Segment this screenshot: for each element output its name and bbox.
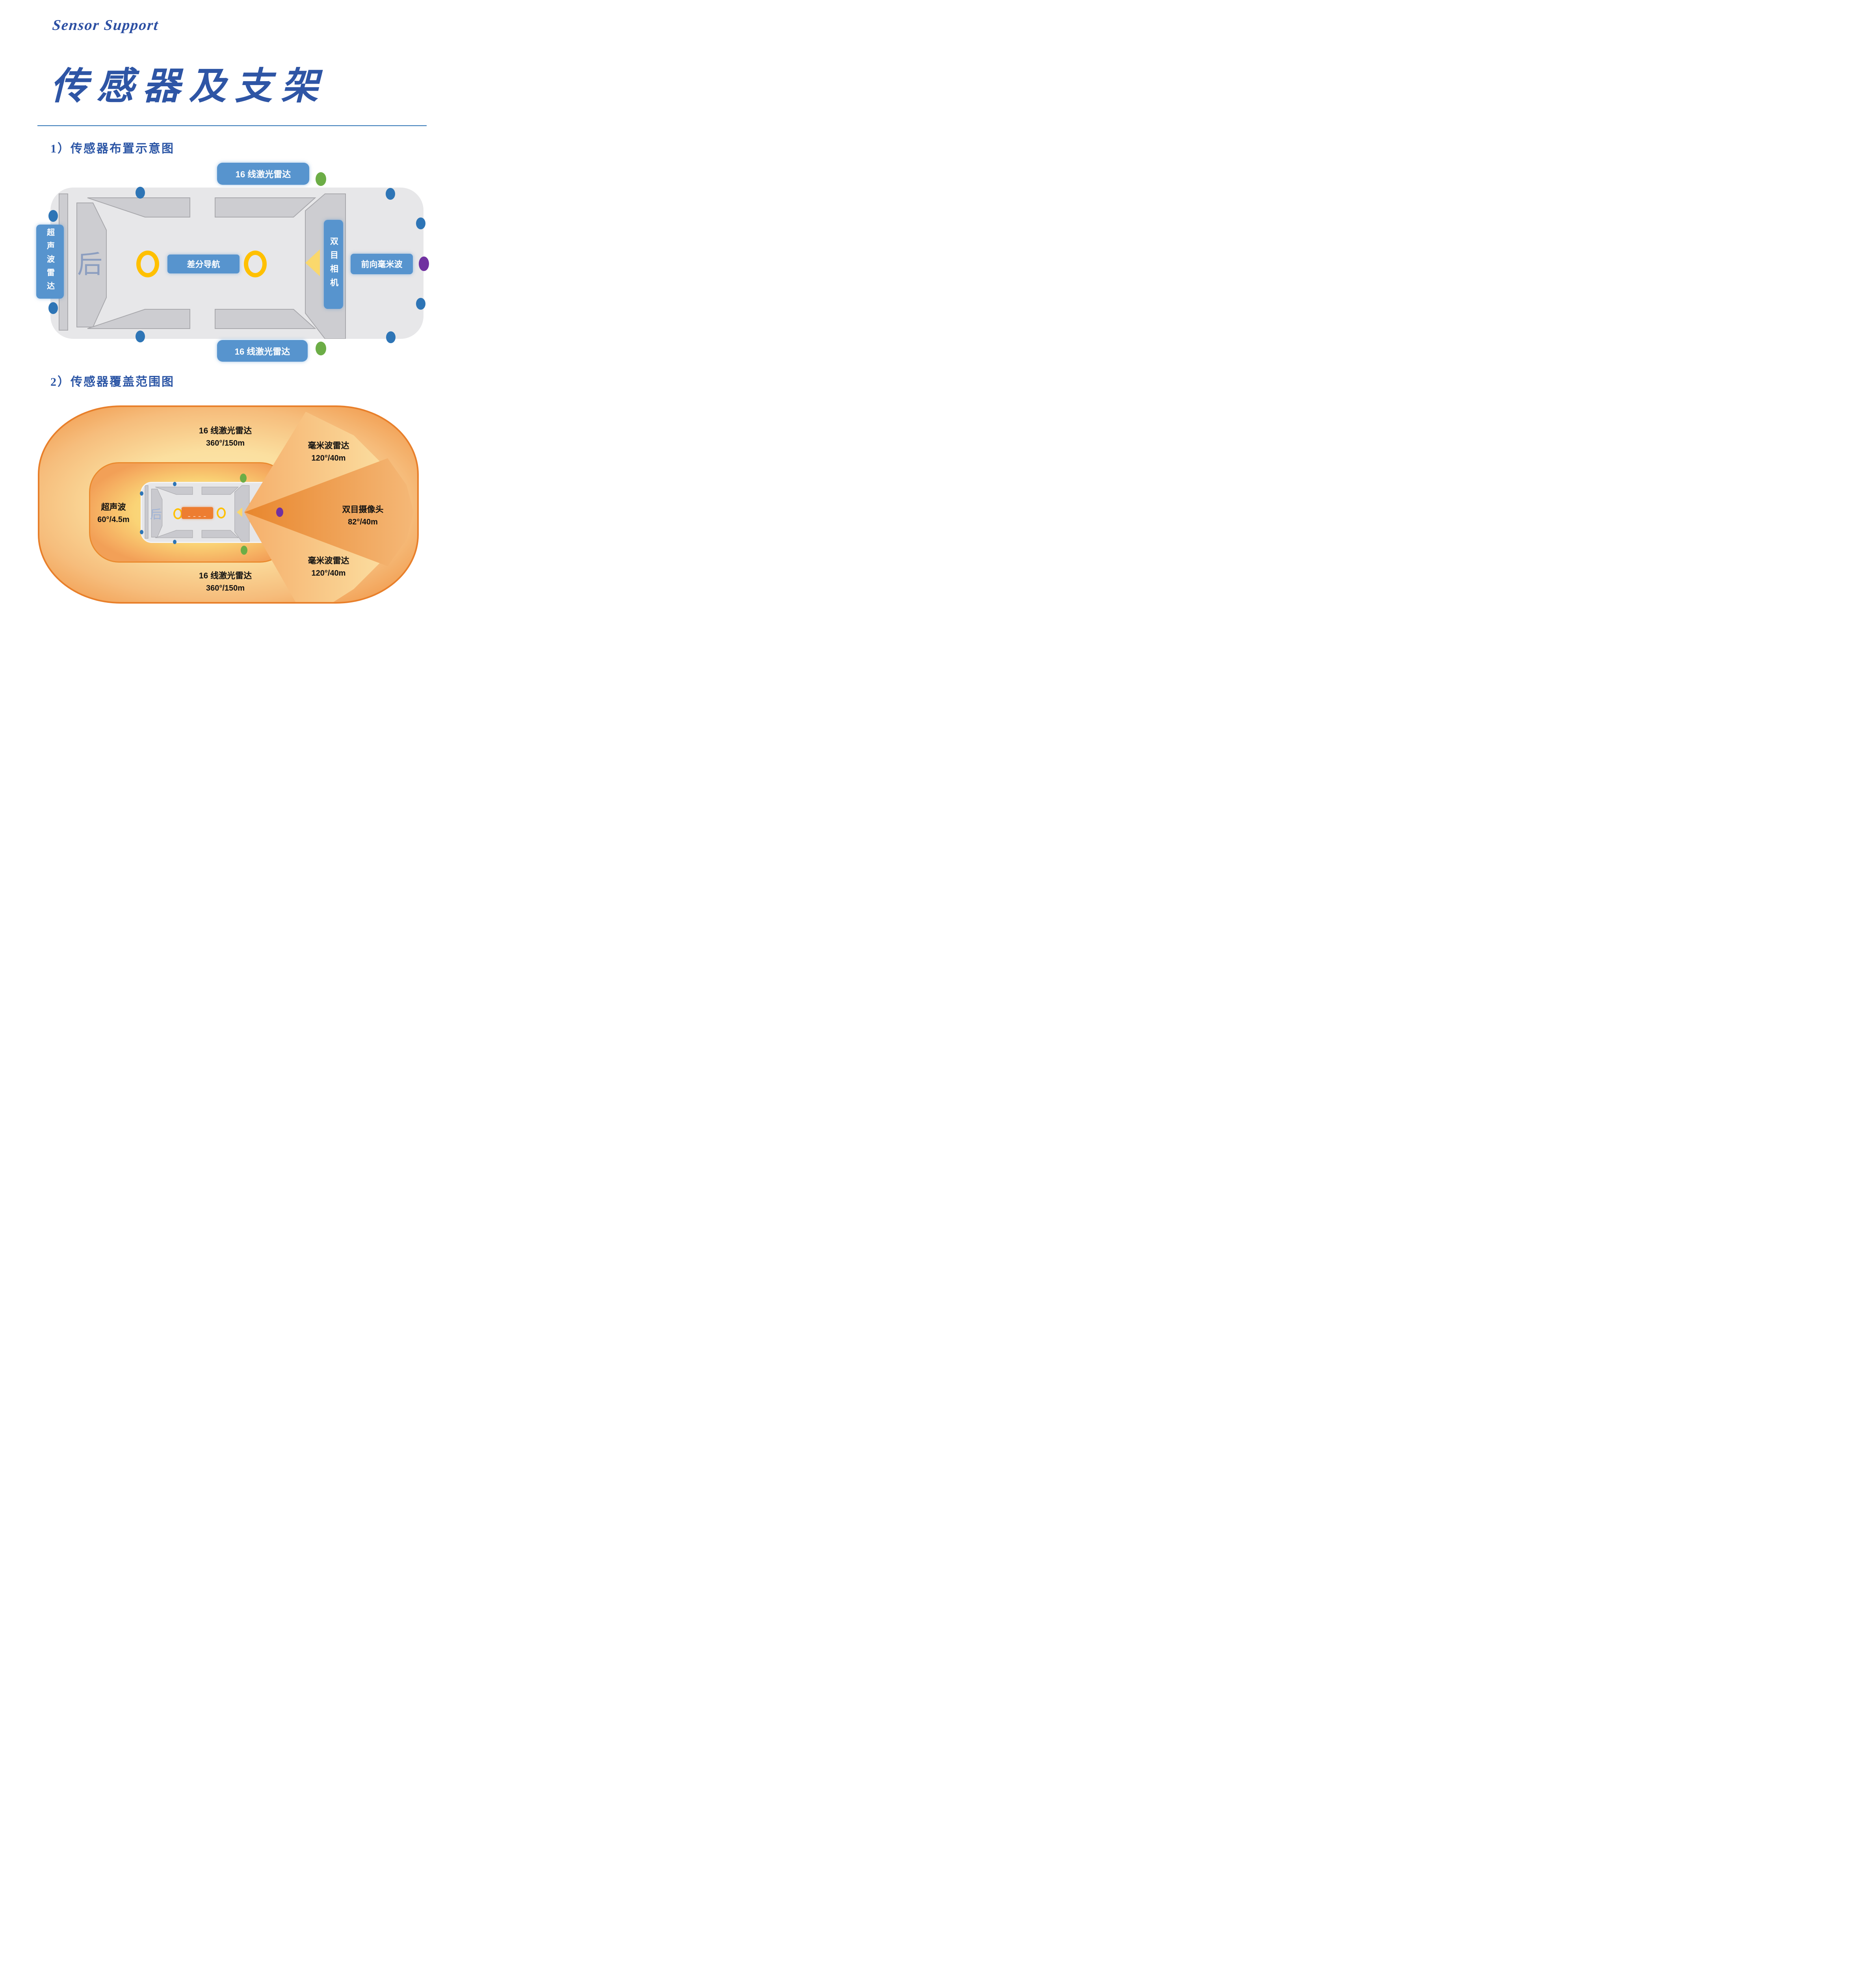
roof-panel-right-top (215, 198, 315, 217)
roof-panel-left-bottom (87, 309, 190, 329)
section-1-heading: 1）传感器布置示意图 (50, 139, 175, 156)
label-differential-nav: 差分导航 (167, 255, 240, 273)
label-front-mmwave: 前向毫米波 (351, 254, 413, 274)
sensor-name: 毫米波雷达 (308, 554, 349, 566)
coverage-label-mmwave-bottom: 毫米波雷达 120°/40m (308, 554, 349, 578)
mini-lidar-dot-top-icon (240, 474, 247, 483)
rear-direction-marker: 后 (77, 244, 102, 281)
sensor-name: 双目摄像头 (342, 503, 384, 515)
mount-dot-icon (386, 331, 396, 343)
lidar-dot-bottom-icon (316, 342, 326, 355)
gnss-antenna-ring-icon (136, 251, 159, 277)
sensor-spec: 120°/40m (308, 569, 349, 578)
sensor-spec: 60°/4.5m (97, 515, 129, 524)
lidar-dot-top-icon (316, 172, 326, 186)
mount-dot-icon (48, 210, 58, 222)
sensor-spec: 82°/40m (342, 518, 384, 527)
sensor-name: 16 线激光雷达 (199, 569, 252, 581)
sensor-name: 16 线激光雷达 (199, 424, 252, 436)
coverage-label-stereo-camera: 双目摄像头 82°/40m (342, 503, 384, 527)
label-lidar-top: 16 线激光雷达 (217, 163, 309, 185)
coverage-map: 后 – – – – (38, 405, 419, 604)
label-stereo-camera: 双目相机 (324, 220, 343, 309)
mount-dot-icon (136, 187, 145, 199)
section-2-heading: 2）传感器覆盖范围图 (50, 372, 175, 389)
coverage-label-mmwave-top: 毫米波雷达 120°/40m (308, 439, 349, 463)
camera-dot-front-icon (419, 256, 429, 271)
sensor-spec: 360°/150m (199, 439, 252, 448)
document-page: Sensor Support 传感器及支架 1）传感器布置示意图 16 线激光雷… (0, 0, 469, 606)
roof-panel-right-bottom (215, 309, 315, 329)
roof-panel-left-top (87, 198, 190, 217)
gnss-antenna-ring-icon (244, 251, 267, 277)
mount-dot-icon (416, 298, 425, 310)
sensor-spec: 360°/150m (199, 584, 252, 593)
label-lidar-bottom: 16 线激光雷达 (217, 340, 308, 362)
mini-camera-dot-icon (276, 507, 283, 517)
title-divider (37, 125, 427, 126)
coverage-label-ultrasonic: 超声波 60°/4.5m (97, 501, 129, 524)
mini-lidar-dot-bottom-icon (241, 546, 247, 555)
label-ultrasonic-radar: 超声波雷达 (36, 225, 64, 299)
sensor-name: 毫米波雷达 (308, 439, 349, 451)
mount-dot-icon (416, 217, 425, 229)
mount-dot-icon (48, 302, 58, 314)
sensor-name: 超声波 (97, 501, 129, 513)
sensor-spec: 120°/40m (308, 454, 349, 463)
coverage-label-lidar-bottom: 16 线激光雷达 360°/150m (199, 569, 252, 593)
mount-dot-icon (136, 331, 145, 342)
mount-dot-icon (386, 188, 395, 200)
coverage-label-lidar-top: 16 线激光雷达 360°/150m (199, 424, 252, 448)
brand-script-text: Sensor Support (52, 17, 160, 34)
page-title: 传感器及支架 (50, 56, 327, 110)
